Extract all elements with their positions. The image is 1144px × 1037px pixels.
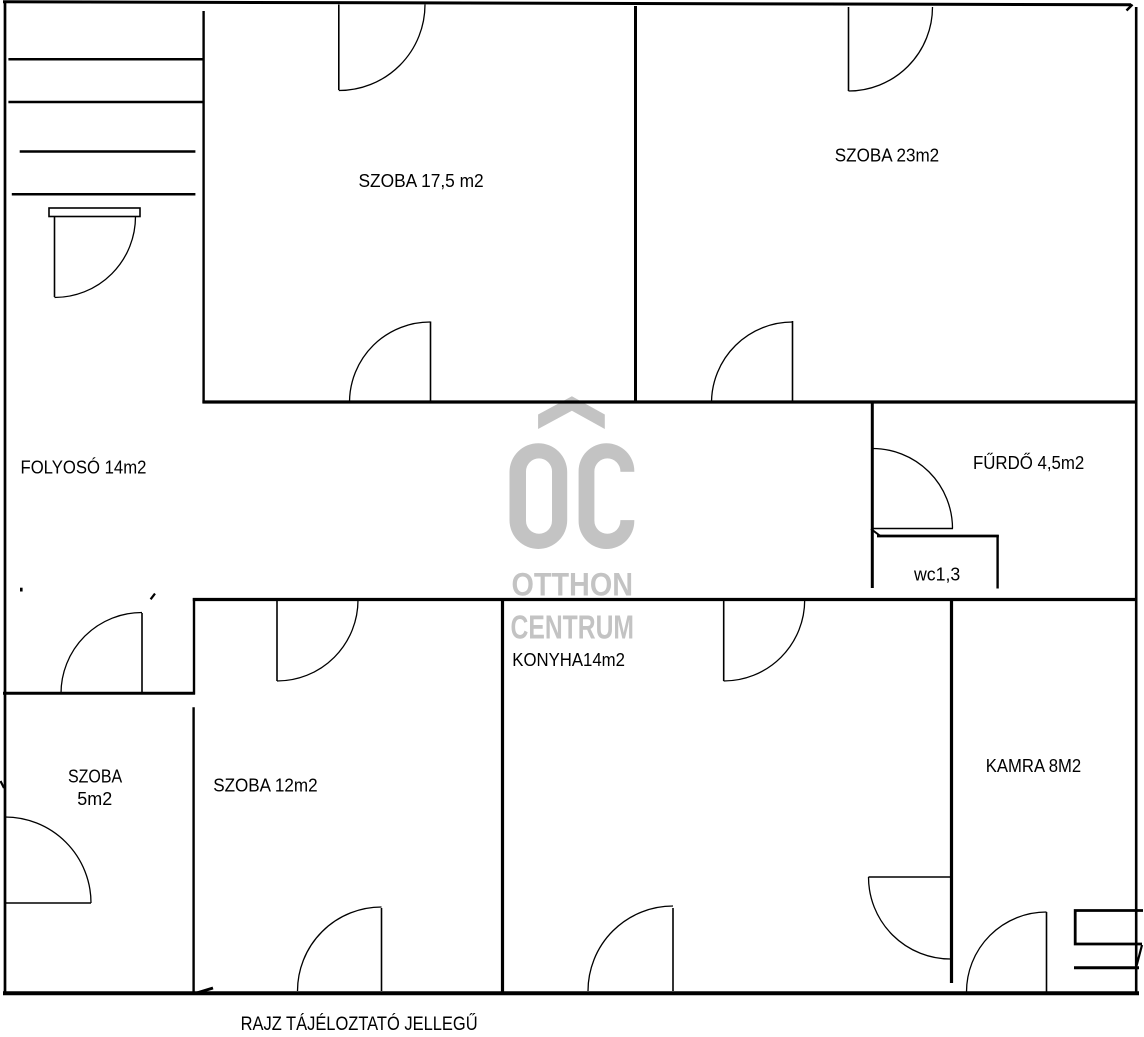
svg-text:RAJZ TÁJÉLOZTATÓ JELLEGŰ: RAJZ TÁJÉLOZTATÓ JELLEGŰ [241, 1012, 478, 1035]
svg-text:SZOBA 23m2: SZOBA 23m2 [835, 145, 939, 166]
svg-text:KONYHA14m2: KONYHA14m2 [512, 649, 625, 670]
svg-text:FOLYOSÓ 14m2: FOLYOSÓ 14m2 [21, 457, 147, 478]
svg-text:OTTHON: OTTHON [512, 567, 634, 603]
svg-text:FŰRDŐ 4,5m2: FŰRDŐ 4,5m2 [973, 452, 1084, 473]
svg-text:KAMRA 8M2: KAMRA 8M2 [986, 755, 1081, 776]
svg-text:SZOBA 12m2: SZOBA 12m2 [213, 775, 317, 796]
svg-text:wc1,3: wc1,3 [913, 564, 960, 585]
svg-text:SZOBA: SZOBA [68, 766, 123, 787]
svg-text:5m2: 5m2 [77, 788, 112, 809]
svg-text:SZOBA 17,5 m2: SZOBA 17,5 m2 [359, 170, 484, 191]
svg-text:CENTRUM: CENTRUM [511, 608, 635, 645]
